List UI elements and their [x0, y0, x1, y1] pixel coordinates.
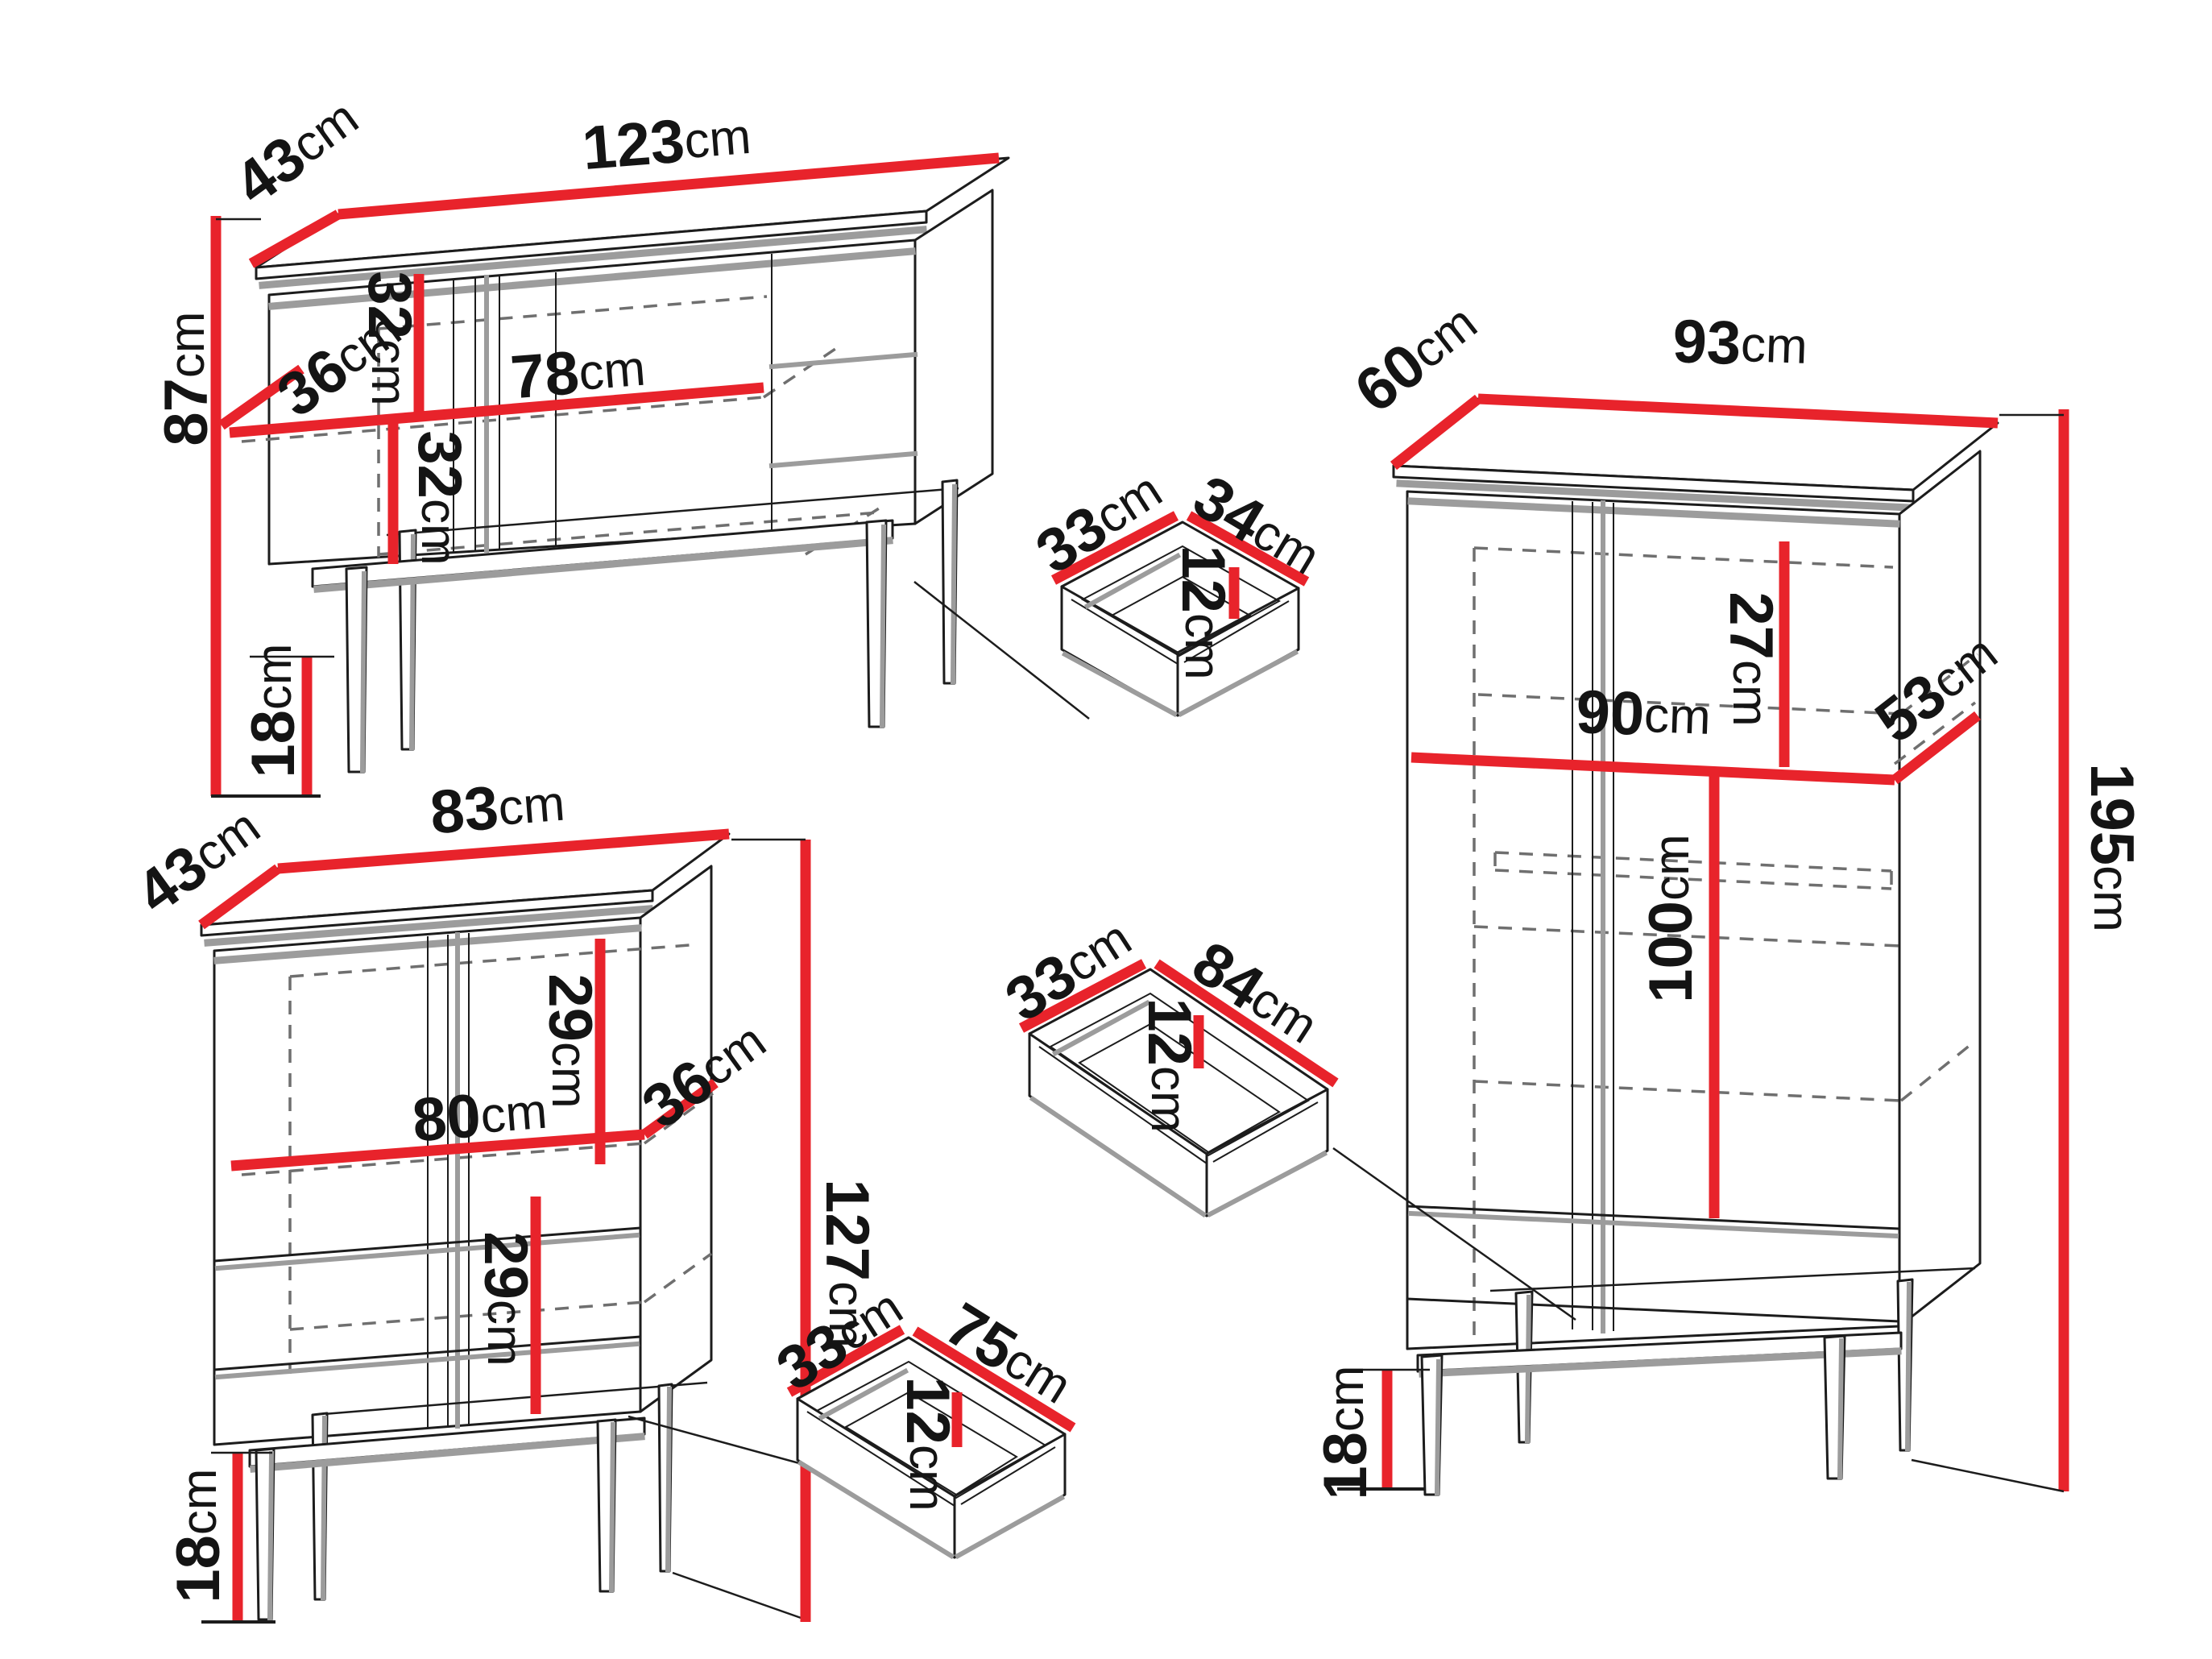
drawer-small-drawing: 33cm 34cm 12cm — [1025, 456, 1333, 715]
wardrobe-hanging-height-label: 100cm — [1637, 834, 1705, 1002]
sideboard-lower-inner-label: 32cm — [405, 430, 474, 565]
highboard-drawing: 43cm 83cm 29cm 80cm 36cm 29cm 127cm 18cm — [124, 769, 884, 1622]
sideboard-height-label: 87cm — [152, 311, 221, 446]
wardrobe-inner-width-label: 90cm — [1575, 678, 1712, 751]
highboard-lower-inner-label: 29cm — [471, 1231, 540, 1366]
diagram-canvas: 43cm 123cm 87cm 32cm 36cm 78cm 32cm 18cm — [0, 0, 2212, 1659]
wardrobe-top-inner-label: 27cm — [1717, 591, 1785, 726]
highboard-upper-inner-label: 29cm — [536, 973, 604, 1108]
highboard-width-label: 83cm — [428, 769, 567, 848]
wardrobe-drawing: 60cm 93cm 27cm 90cm 53cm 100cm 195cm 18c… — [1311, 289, 2146, 1500]
drawer-medium-height-label: 12cm — [1135, 997, 1203, 1132]
drawer-large-drawing: 33cm 75cm 12cm — [765, 1273, 1085, 1557]
wardrobe-leg-height-label: 18cm — [1311, 1365, 1380, 1499]
sideboard-leg-height-label: 18cm — [239, 643, 308, 778]
highboard-leg-height-label: 18cm — [164, 1468, 233, 1603]
wardrobe-width-label: 93cm — [1671, 307, 1808, 380]
sideboard-width-label: 123cm — [580, 102, 753, 183]
wardrobe-height-label: 195cm — [2077, 763, 2146, 931]
drawer-large-height-label: 12cm — [893, 1376, 962, 1511]
furniture-dimension-diagram: 43cm 123cm 87cm 32cm 36cm 78cm 32cm 18cm — [0, 0, 2212, 1659]
drawer-small-height-label: 12cm — [1169, 545, 1237, 679]
sideboard-drawing: 43cm 123cm 87cm 32cm 36cm 78cm 32cm 18cm — [152, 84, 1089, 796]
sideboard-depth-label: 43cm — [222, 84, 371, 218]
